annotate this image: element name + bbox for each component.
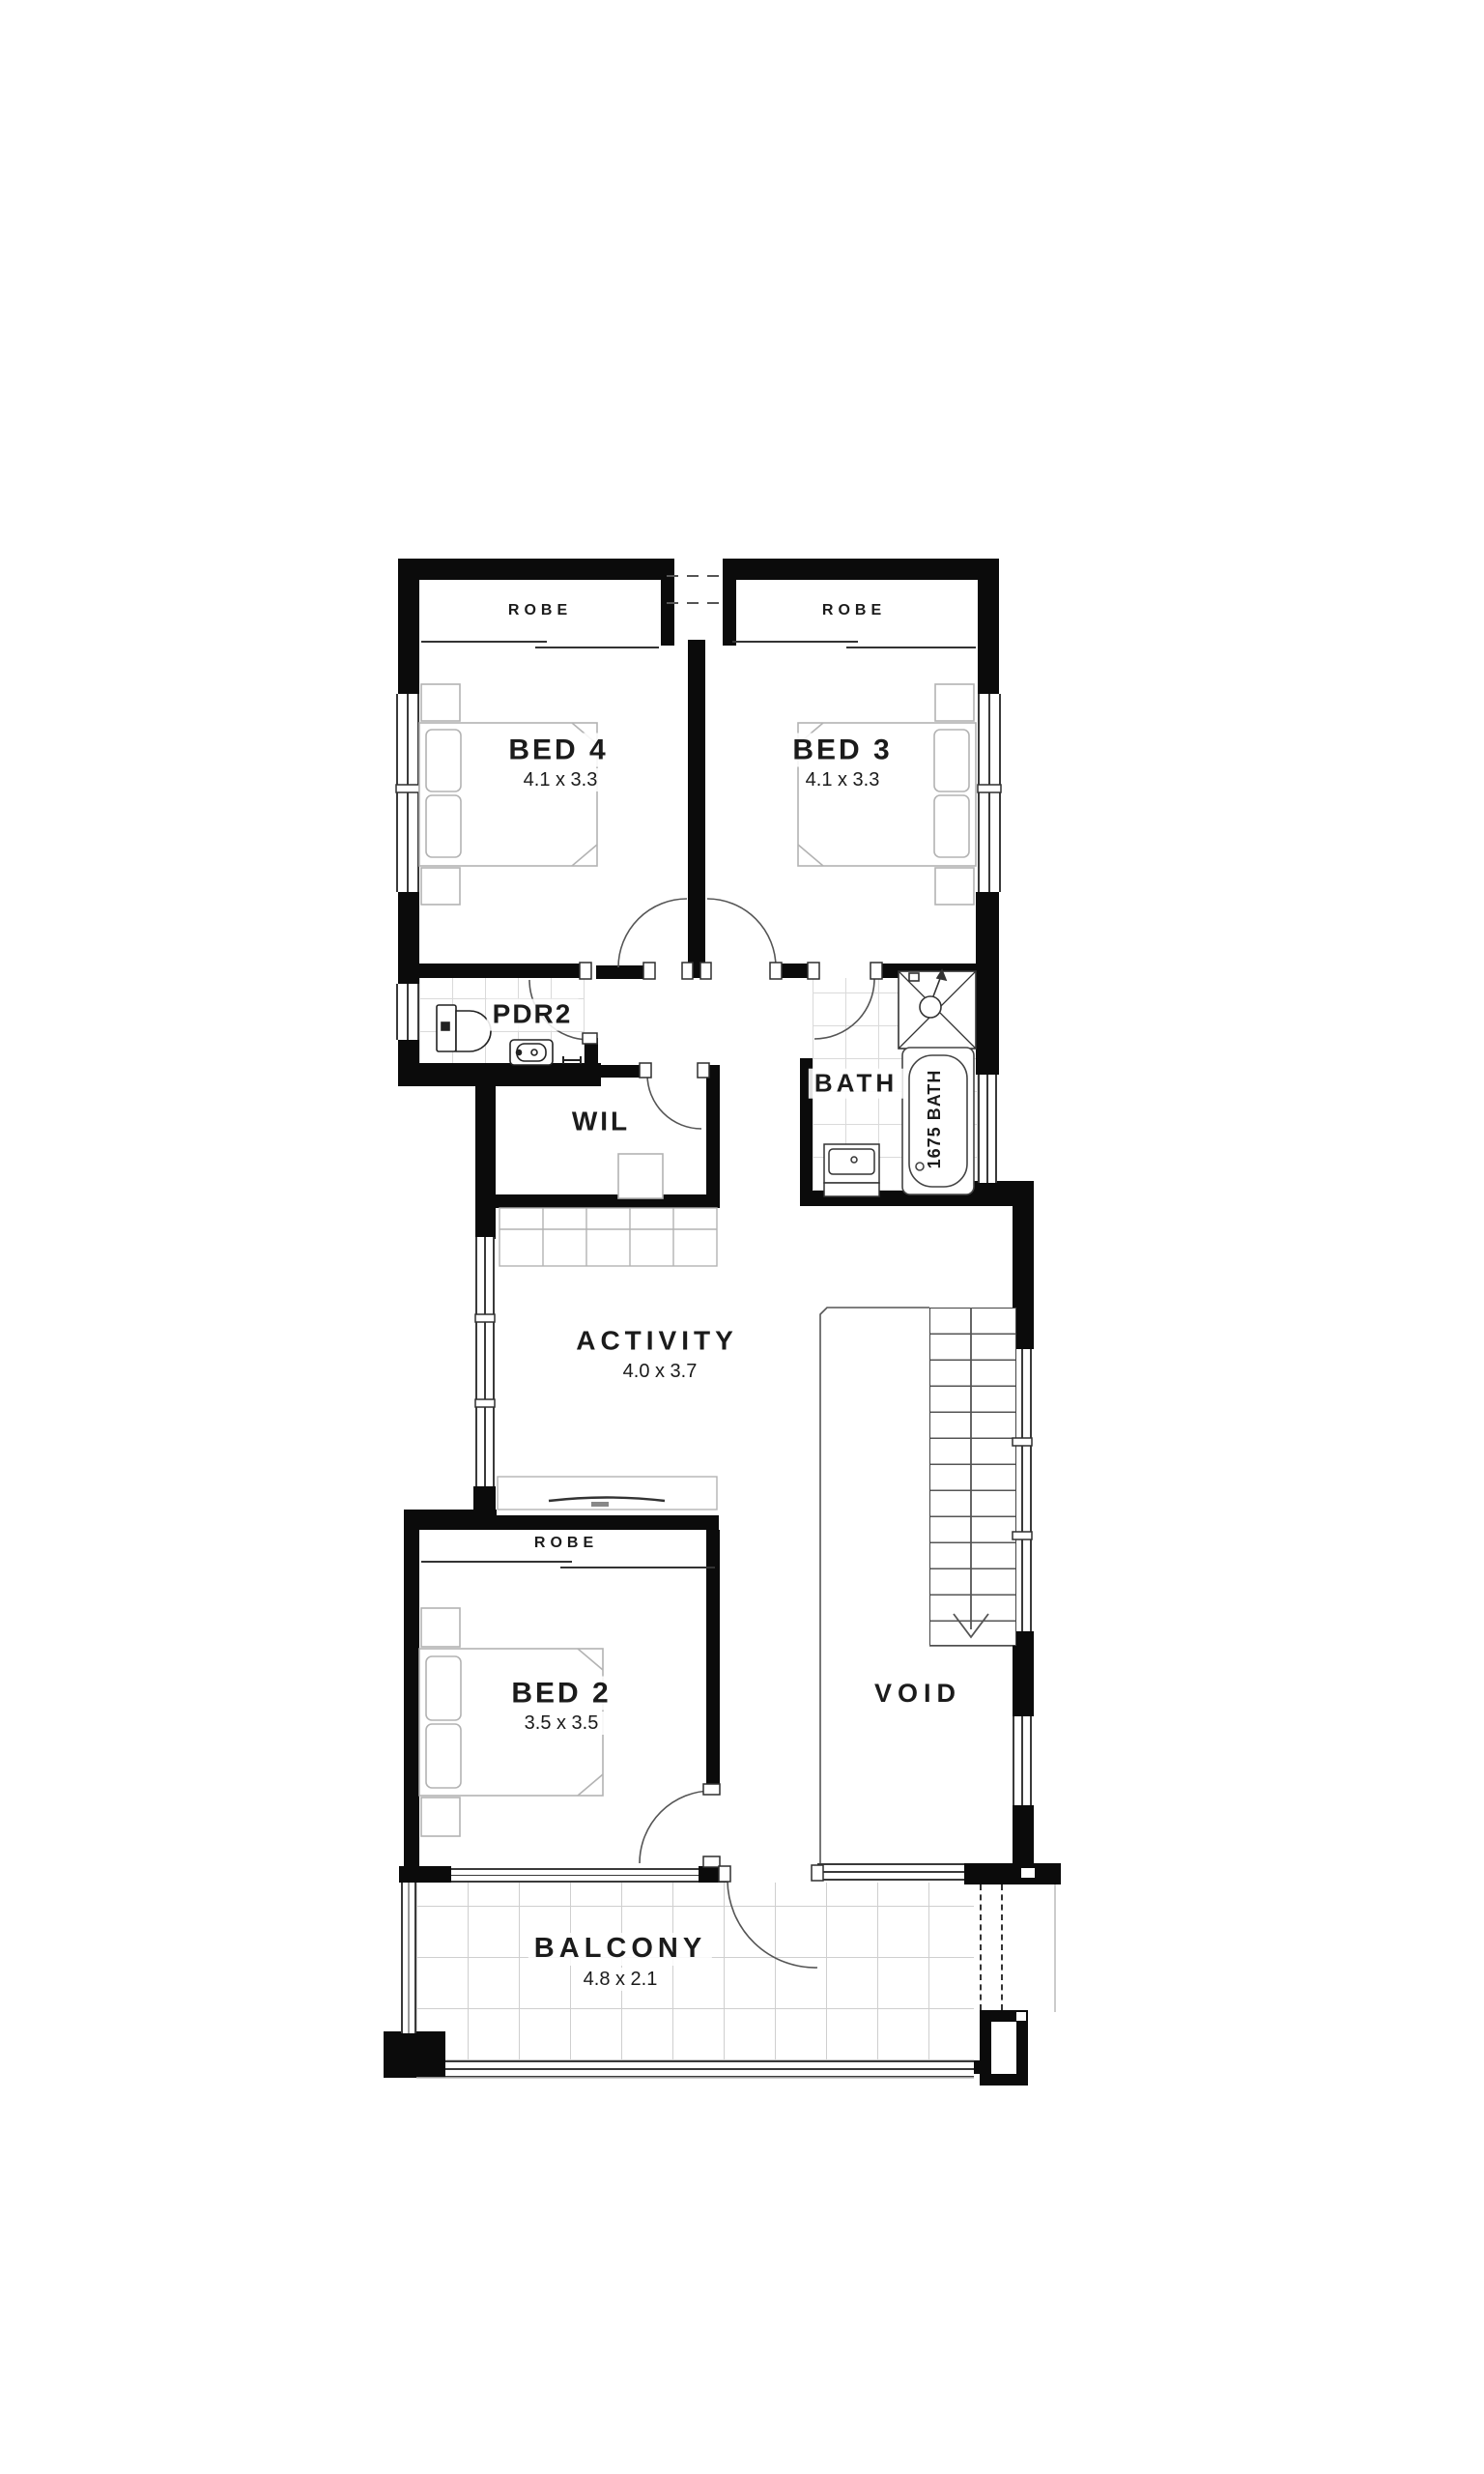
toilet-icon	[437, 1005, 491, 1051]
towel-rail-icon	[563, 1056, 581, 1064]
robe-label-bed2: ROBE	[528, 1534, 604, 1553]
bath-door-arc	[814, 979, 874, 1039]
activity-cabinet-icon	[499, 1208, 717, 1266]
room-label-bed4: BED 4	[502, 734, 614, 767]
bed4-door-arc	[618, 899, 687, 967]
vanity-icon	[824, 1144, 879, 1196]
room-label-activity: ACTIVITY	[570, 1326, 744, 1358]
room-label-bed2: BED 2	[505, 1677, 616, 1711]
shower-icon	[899, 970, 976, 1049]
plan-linework	[0, 0, 1484, 2474]
room-label-bath: BATH	[809, 1069, 903, 1099]
bed3-icon	[798, 684, 976, 905]
room-label-bed3: BED 3	[786, 734, 898, 767]
stair-direction-arrow-icon	[954, 1308, 988, 1637]
room-dims-activity: 4.0 x 3.7	[617, 1360, 703, 1383]
bathtub-size-label: 1675 BATH	[926, 1070, 945, 1169]
terrace-edge	[416, 1884, 1055, 2078]
bed2-door-arc	[640, 1791, 712, 1863]
room-dims-bed3: 4.1 x 3.3	[800, 768, 886, 791]
robe-label-bed3: ROBE	[816, 601, 892, 620]
tv-unit-icon	[498, 1477, 717, 1510]
void-outline	[820, 1308, 1013, 1863]
room-dims-bed2: 3.5 x 3.5	[519, 1712, 605, 1735]
room-label-void: VOID	[869, 1679, 967, 1710]
room-label-pdr2: PDR2	[487, 999, 579, 1031]
room-dims-balcony: 4.8 x 2.1	[578, 1968, 664, 1991]
room-label-balcony: BALCONY	[528, 1933, 712, 1966]
balcony-door-arc	[728, 1881, 817, 1968]
bed4-icon	[419, 684, 597, 905]
room-dims-bed4: 4.1 x 3.3	[518, 768, 604, 791]
bulkhead-dashed-lines	[667, 576, 727, 603]
room-label-wil: WIL	[566, 1107, 636, 1138]
robe-label-bed4: ROBE	[502, 601, 578, 620]
basin-icon	[510, 1040, 553, 1065]
wil-door-arc	[647, 1075, 701, 1129]
linen-shelf-icon	[618, 1154, 663, 1198]
floor-plan: ROBE ROBE BED 4 4.1 x 3.3 BED 3 4.1 x 3.…	[0, 0, 1484, 2474]
bed3-door-arc	[707, 899, 776, 967]
